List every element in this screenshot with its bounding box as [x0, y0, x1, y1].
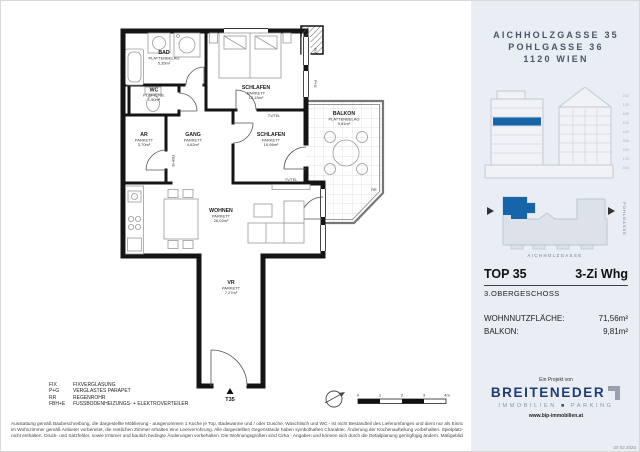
svg-text:1,50m²: 1,50m²: [148, 97, 161, 102]
unit-type: 3-Zi Whg: [575, 267, 628, 281]
legend: FIXFIXVERGLASUNG P+GVERGLASTES PARAPET R…: [49, 382, 188, 408]
svg-text:6.00: 6.00: [623, 112, 629, 116]
developer-logo: Ein Projekt von BREITENEDER IMMOBILIEN ■…: [471, 377, 640, 419]
svg-text:12,15m²: 12,15m²: [249, 95, 264, 100]
room-label-wohnen: WOHNEN PARKETT 26,02m²: [209, 208, 233, 223]
legend-row: FBH+EFUSSBODENHEIZUNGS- + ELEKTROVERTEIL…: [49, 401, 188, 407]
floor-plan-drawing: BAD PLATTENBELAG 5,35m² WC PLATTENB. 1,5…: [86, 23, 471, 408]
svg-text:4m: 4m: [444, 393, 450, 398]
building-elevation-diagram: 2.00 1.00 6.00 5.00 4.00 3.00 2.00 1.00 …: [481, 87, 631, 187]
site-plan-diagram: AICHHOLZGASSE POHLGASSE: [481, 189, 631, 261]
svg-text:2.00: 2.00: [623, 94, 629, 98]
svg-text:4,62m²: 4,62m²: [187, 142, 200, 147]
rainpipe-label: RR: [371, 188, 377, 192]
section-marker-left: [487, 207, 494, 215]
room-label-ar: AR PARKETT 3,70m²: [135, 132, 154, 147]
svg-text:1.00: 1.00: [623, 103, 629, 107]
svg-text:26,02m²: 26,02m²: [214, 218, 229, 223]
svg-text:10,95m²: 10,95m²: [264, 142, 279, 147]
floorplan-sheet: BAD PLATTENBELAG 5,35m² WC PLATTENB. 1,5…: [0, 0, 640, 452]
logo-pretext: Ein Projekt von: [471, 377, 640, 383]
street-label-bottom: AICHHOLZGASSE: [527, 253, 582, 258]
kitchen-counter: [126, 186, 144, 254]
room-label-schlafen-2: SCHLAFEN PARKETT 10,95m²: [257, 132, 285, 147]
double-bed: [210, 33, 292, 78]
window-fix-label: FIX: [313, 48, 317, 54]
plan-date: 20 02 2020: [613, 445, 636, 450]
floor-label: 3.OBERGESCHOSS: [484, 289, 628, 298]
tv-tel-label-schlafen: TV/TEL: [268, 114, 280, 118]
bathtub-fixture: [126, 49, 144, 85]
sofa: [248, 201, 304, 243]
svg-text:0.00: 0.00: [623, 166, 629, 170]
divider: [484, 285, 628, 286]
svg-text:2: 2: [401, 393, 404, 398]
svg-text:2.00: 2.00: [623, 148, 629, 152]
project-address: AICHHOLZGASSE 35 POHLGASSE 36 1120 WIEN: [471, 29, 640, 65]
sidebar: AICHHOLZGASSE 35 POHLGASSE 36 1120 WIEN …: [471, 1, 640, 452]
unit-number: TOP 35: [484, 267, 527, 281]
area-row: BALKON:9,81m²: [484, 325, 628, 338]
room-label-gang: GANG PARKETT 4,62m²: [184, 132, 203, 147]
svg-text:3: 3: [423, 393, 426, 398]
heating-distributor-label: FBH+E: [171, 155, 175, 167]
svg-text:0: 0: [357, 393, 360, 398]
room-label-schlafen-1: SCHLAFEN PARKETT 12,15m²: [242, 85, 270, 100]
svg-text:T35: T35: [225, 397, 234, 403]
svg-text:9,81m²: 9,81m²: [338, 121, 351, 126]
area-row: WOHNNUTZFLÄCHE:71,56m²: [484, 312, 628, 325]
logo-tagline: IMMOBILIEN ■ PARKING: [471, 403, 640, 409]
room-label-vr: VR PARKETT 7,27m²: [222, 280, 241, 295]
svg-text:7,27m²: 7,27m²: [225, 290, 238, 295]
floor-plan: BAD PLATTENBELAG 5,35m² WC PLATTENB. 1,5…: [86, 23, 471, 413]
square-separator-icon: ■: [561, 403, 567, 409]
svg-text:5.00: 5.00: [623, 121, 629, 125]
logo-url: www.bip-immobilien.at: [471, 413, 640, 419]
logo-corner-icon: [608, 386, 621, 401]
svg-text:3.00: 3.00: [623, 139, 629, 143]
svg-text:4.00: 4.00: [623, 130, 629, 134]
entrance-marker: T35: [225, 388, 234, 403]
disclaimer-text: Ausstattung gemäß Baubeschreibung, die d…: [11, 421, 463, 439]
street-label-right: POHLGASSE: [622, 202, 627, 236]
unit-info: TOP 35 3-Zi Whg 3.OBERGESCHOSS WOHNNUTZF…: [484, 267, 628, 338]
tv-board: [272, 185, 310, 190]
dining-table: [164, 190, 198, 249]
washing-machine-fixture: [174, 33, 200, 57]
svg-text:5,35m²: 5,35m²: [158, 61, 171, 66]
window-parapet-label: P+G: [313, 80, 317, 87]
svg-text:1.00: 1.00: [623, 157, 629, 161]
logo-wordmark: BREITENEDER: [491, 386, 605, 400]
svg-text:3,70m²: 3,70m²: [138, 142, 151, 147]
scale-bar: 0 1 2 3 4m: [357, 393, 451, 404]
section-marker-right: [608, 207, 615, 215]
north-arrow-icon: [325, 391, 345, 407]
svg-text:1: 1: [379, 393, 382, 398]
tv-tel-label-wohnen: TV/TEL: [285, 178, 297, 182]
highlighted-floor: [493, 118, 541, 126]
